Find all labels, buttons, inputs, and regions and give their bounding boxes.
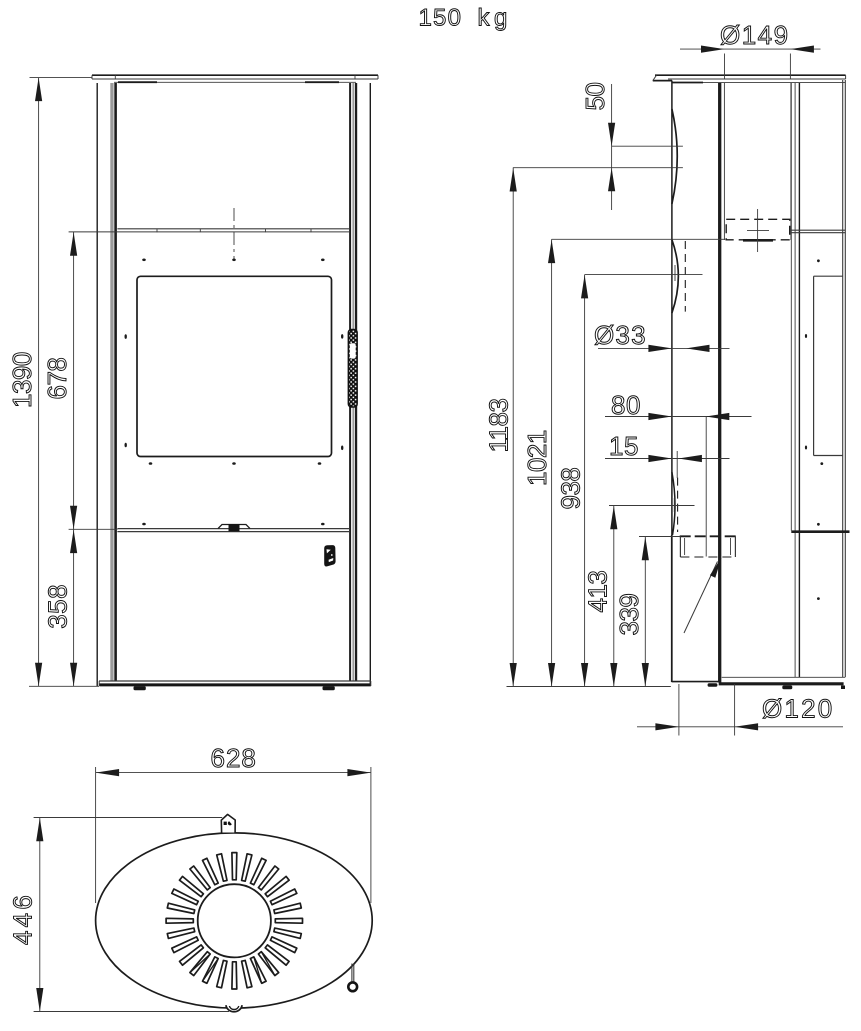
svg-text:678: 678 — [42, 358, 72, 400]
svg-text:938: 938 — [556, 468, 586, 510]
svg-text:Ø149: Ø149 — [720, 20, 790, 50]
svg-text:358: 358 — [43, 584, 73, 629]
svg-text:Ø33: Ø33 — [594, 320, 647, 350]
svg-text:50: 50 — [580, 83, 610, 111]
svg-text:150: 150 — [419, 5, 463, 32]
svg-text:kg: kg — [478, 5, 512, 32]
svg-text:80: 80 — [611, 390, 641, 420]
svg-text:413: 413 — [583, 571, 613, 613]
svg-text:15: 15 — [609, 431, 639, 461]
svg-text:Ø120: Ø120 — [762, 694, 834, 724]
svg-text:339: 339 — [614, 594, 644, 636]
svg-text:1183: 1183 — [484, 399, 514, 453]
svg-text:446: 446 — [8, 892, 38, 945]
svg-text:1390: 1390 — [7, 352, 37, 408]
svg-text:628: 628 — [211, 743, 257, 773]
svg-text:1021: 1021 — [522, 430, 552, 486]
